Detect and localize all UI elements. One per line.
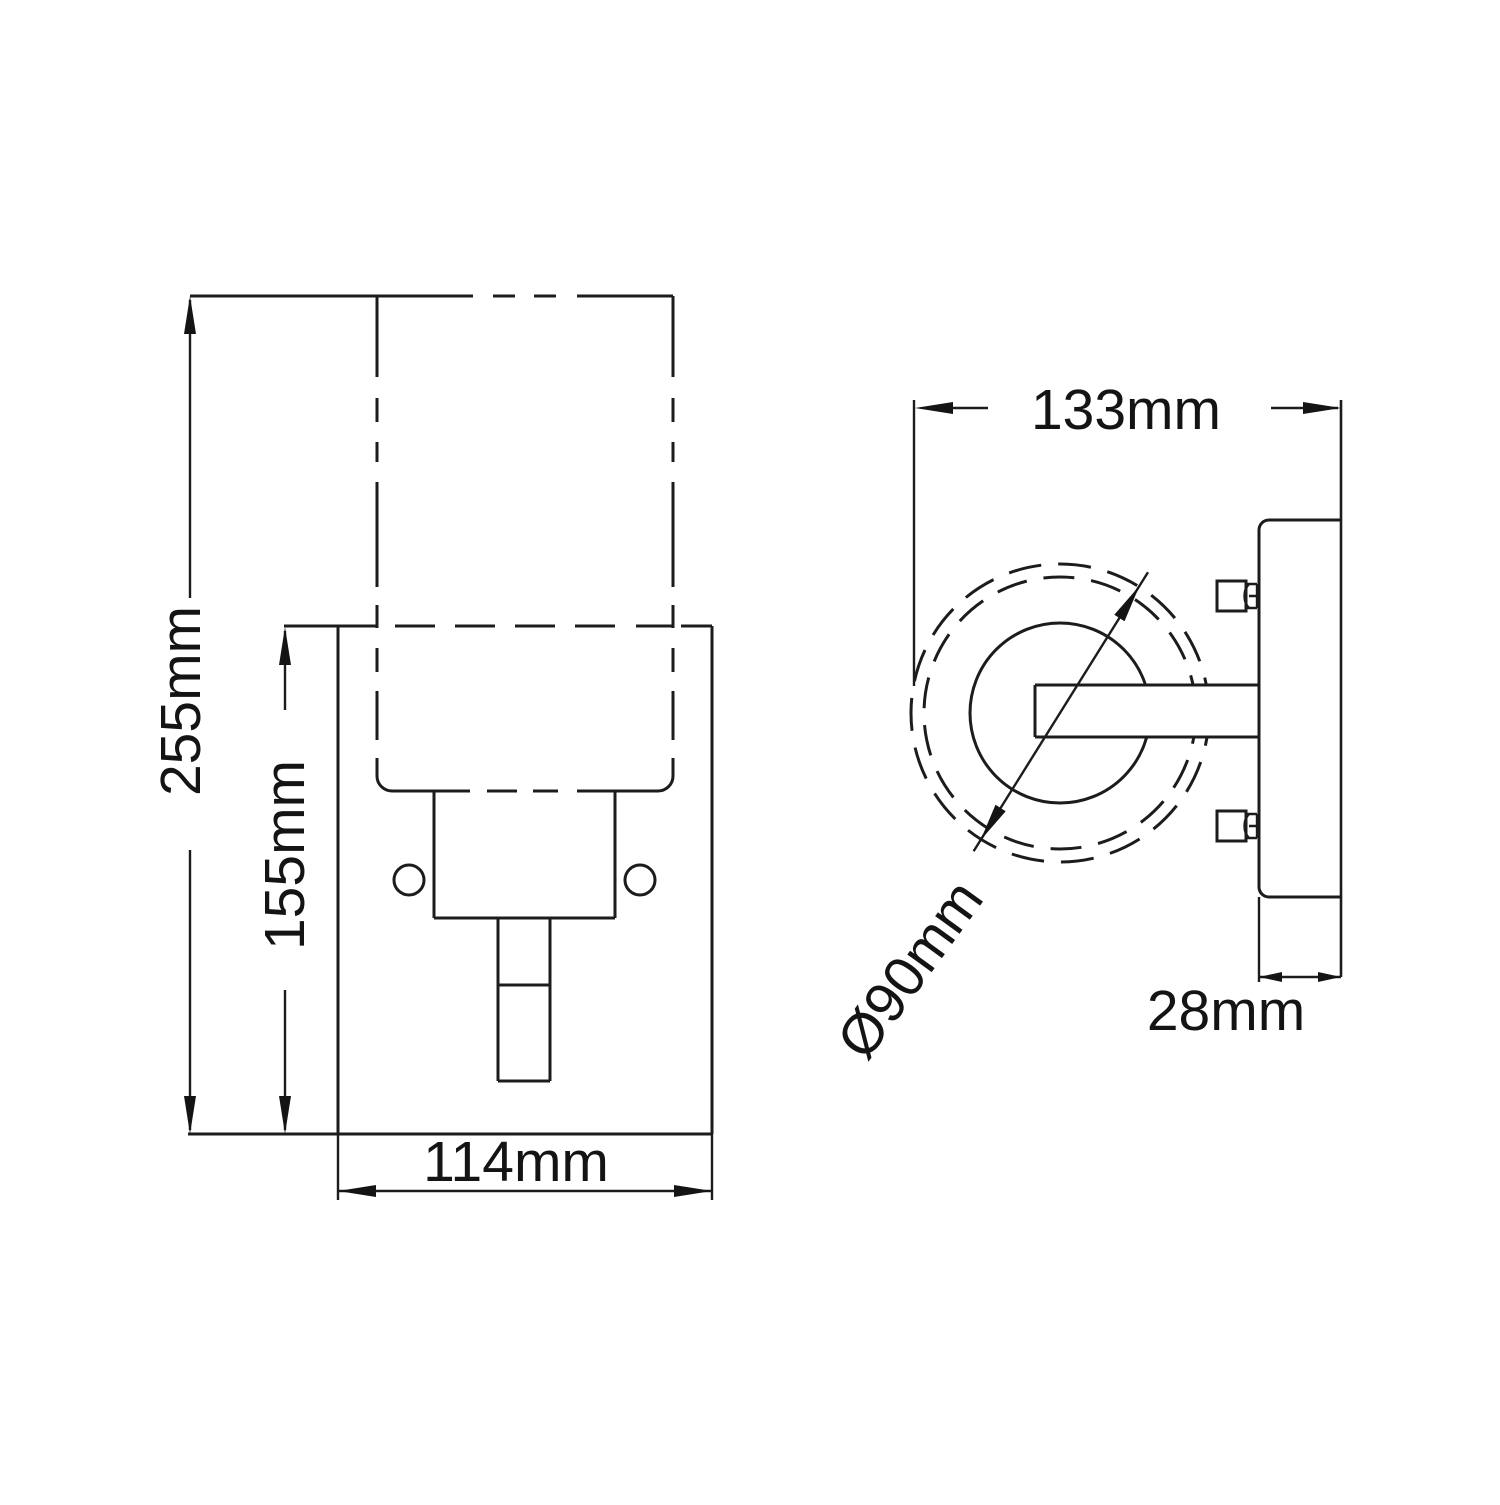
svg-text:155mm: 155mm: [253, 760, 317, 950]
svg-text:Ø90mm: Ø90mm: [825, 869, 996, 1071]
svg-text:255mm: 255mm: [149, 606, 213, 796]
svg-text:28mm: 28mm: [1147, 979, 1305, 1043]
svg-text:114mm: 114mm: [423, 1130, 609, 1194]
svg-text:133mm: 133mm: [1031, 378, 1221, 442]
